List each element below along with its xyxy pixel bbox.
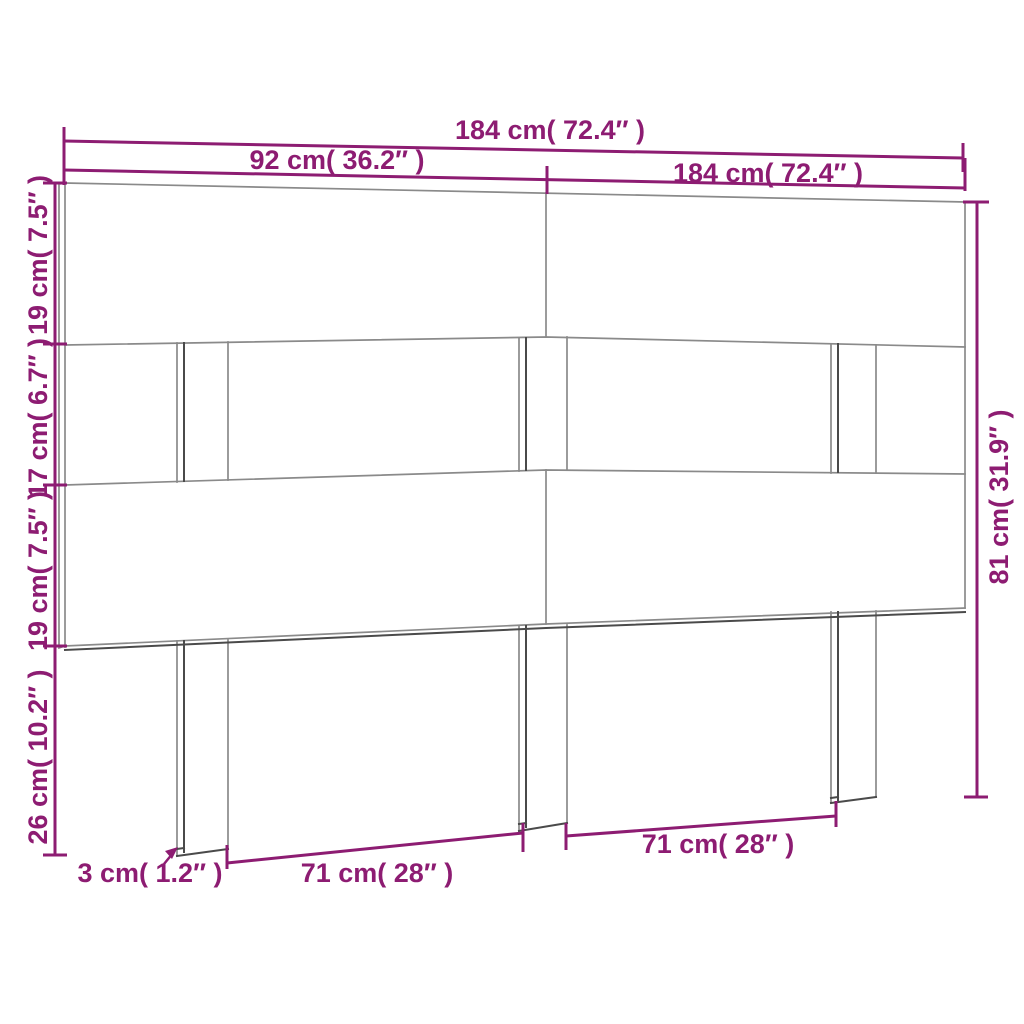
label-total-width-top: 184 cm( 72.4″ ) bbox=[455, 115, 645, 145]
middle-board-bottom-shadow bbox=[65, 612, 965, 650]
headboard-outline-light bbox=[59, 183, 965, 856]
diagram-canvas: 184 cm( 72.4″ ) 92 cm( 36.2″ ) 184 cm( 7… bbox=[0, 0, 1024, 1024]
label-half-width: 92 cm( 36.2″ ) bbox=[249, 145, 424, 175]
label-legs-height: 26 cm( 10.2″ ) bbox=[23, 669, 53, 844]
label-middle-board-height: 19 cm( 7.5″ ) bbox=[23, 491, 53, 651]
label-board-thickness: 3 cm( 1.2″ ) bbox=[78, 858, 223, 888]
headboard-outline-dark bbox=[65, 338, 965, 856]
label-leg-span-left: 71 cm( 28″ ) bbox=[301, 858, 454, 888]
headboard-dimension-diagram: 184 cm( 72.4″ ) 92 cm( 36.2″ ) 184 cm( 7… bbox=[0, 0, 1024, 1024]
label-total-width-right: 184 cm( 72.4″ ) bbox=[673, 158, 863, 188]
top-board-bottom-edge bbox=[65, 337, 965, 347]
left-end-face bbox=[59, 183, 65, 648]
label-top-board-height: 19 cm( 7.5″ ) bbox=[23, 175, 53, 335]
label-gap-height: 17 cm( 6.7″ ) bbox=[23, 338, 53, 498]
middle-board-bottom-edge bbox=[65, 608, 965, 646]
middle-board-top-edge bbox=[65, 470, 965, 485]
label-leg-span-right: 71 cm( 28″ ) bbox=[642, 829, 795, 859]
label-total-height: 81 cm( 31.9″ ) bbox=[984, 409, 1014, 584]
